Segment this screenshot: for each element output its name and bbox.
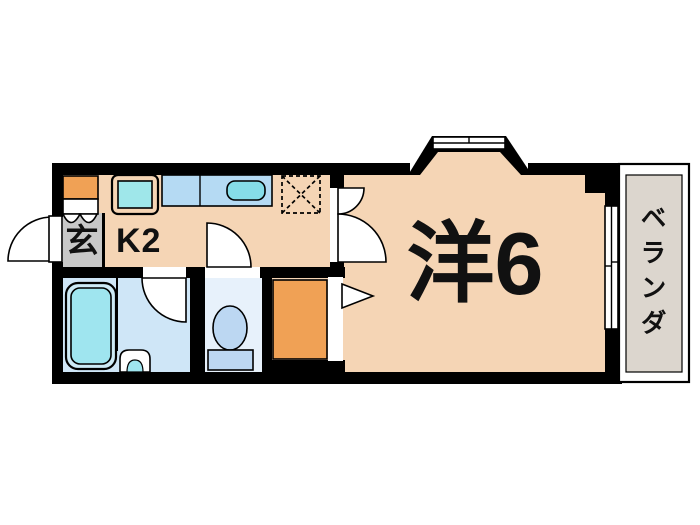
wall-right-upper [605, 193, 618, 207]
bay-window [433, 137, 505, 149]
wall-top-right [528, 163, 618, 175]
wall-mid-2 [186, 267, 205, 278]
wall-room-west-upper [330, 163, 344, 188]
wall-top-left [52, 163, 410, 175]
wall-left-lower [52, 262, 63, 384]
balcony-window [605, 206, 618, 329]
wall-mid-1 [52, 267, 143, 278]
wall-bottom [52, 372, 622, 384]
stove-top [118, 181, 152, 208]
balcony-label: ベランダ [639, 204, 665, 344]
wall-bath-toilet [190, 278, 205, 372]
wall-room-west-mid [330, 262, 344, 278]
entrance-label: 玄 [62, 224, 102, 257]
toilet-tank [208, 350, 253, 370]
shoe-cabinet-doors [63, 199, 98, 214]
kitchen-sink [227, 181, 265, 200]
washing-machine-space [273, 280, 327, 359]
washbasin-bowl [127, 360, 143, 372]
doorway-toilet [205, 267, 260, 278]
wall-toilet-alcove [262, 278, 272, 372]
kitchen-label: K2 [116, 224, 161, 258]
toilet-bowl [213, 306, 247, 350]
opening-alcove-room [328, 277, 343, 361]
floor-plan-image: 玄 K2 洋6 ベランダ [0, 0, 700, 525]
entrance-door-leaf [49, 216, 62, 262]
doorway-bathroom [143, 267, 186, 278]
wall-left-upper [52, 163, 63, 217]
entrance-step-divider [102, 213, 105, 267]
bathtub [71, 288, 111, 364]
western-room-label: 洋6 [385, 220, 565, 308]
entrance-door-swing [8, 217, 52, 261]
wall-alcove-bottom [262, 360, 345, 372]
wall-corner-topright [585, 175, 618, 193]
floor-plan-drawing [0, 0, 700, 525]
shoe-cabinet [63, 176, 98, 199]
